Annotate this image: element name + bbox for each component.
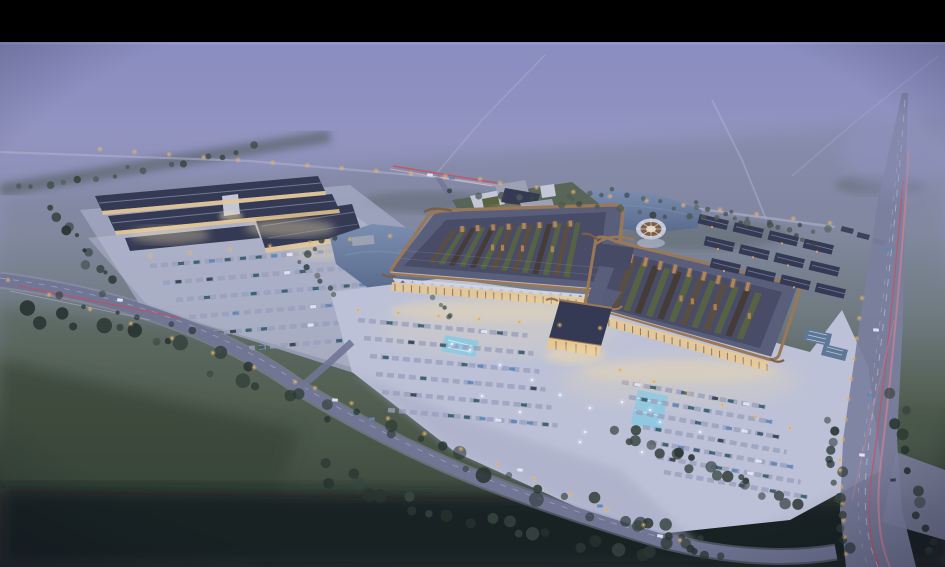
letterbox-bar xyxy=(0,0,945,42)
scene-svg xyxy=(0,0,945,567)
aerial-dusk-render xyxy=(0,0,945,567)
vignette xyxy=(0,42,945,567)
